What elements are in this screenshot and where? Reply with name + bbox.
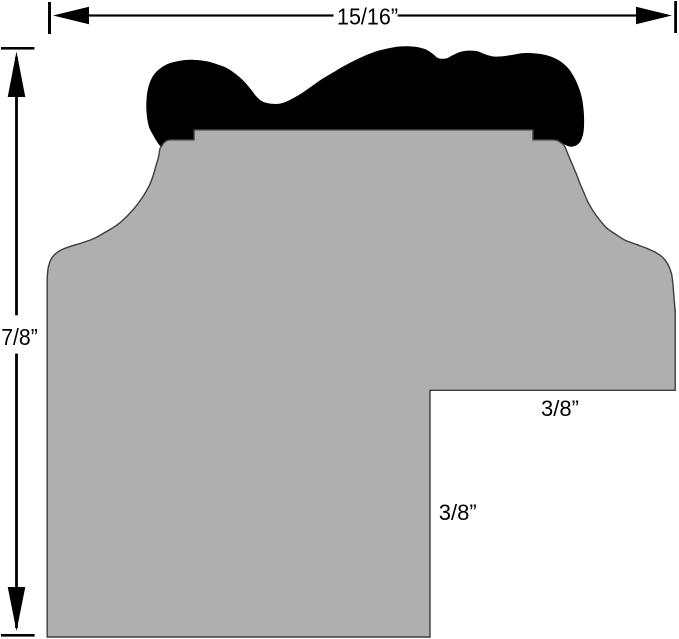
svg-text:15/16”: 15/16” [337,3,398,29]
svg-text:3/8”: 3/8” [541,396,579,421]
svg-text:3/8”: 3/8” [439,500,477,525]
svg-text:7/8”: 7/8” [1,324,38,350]
